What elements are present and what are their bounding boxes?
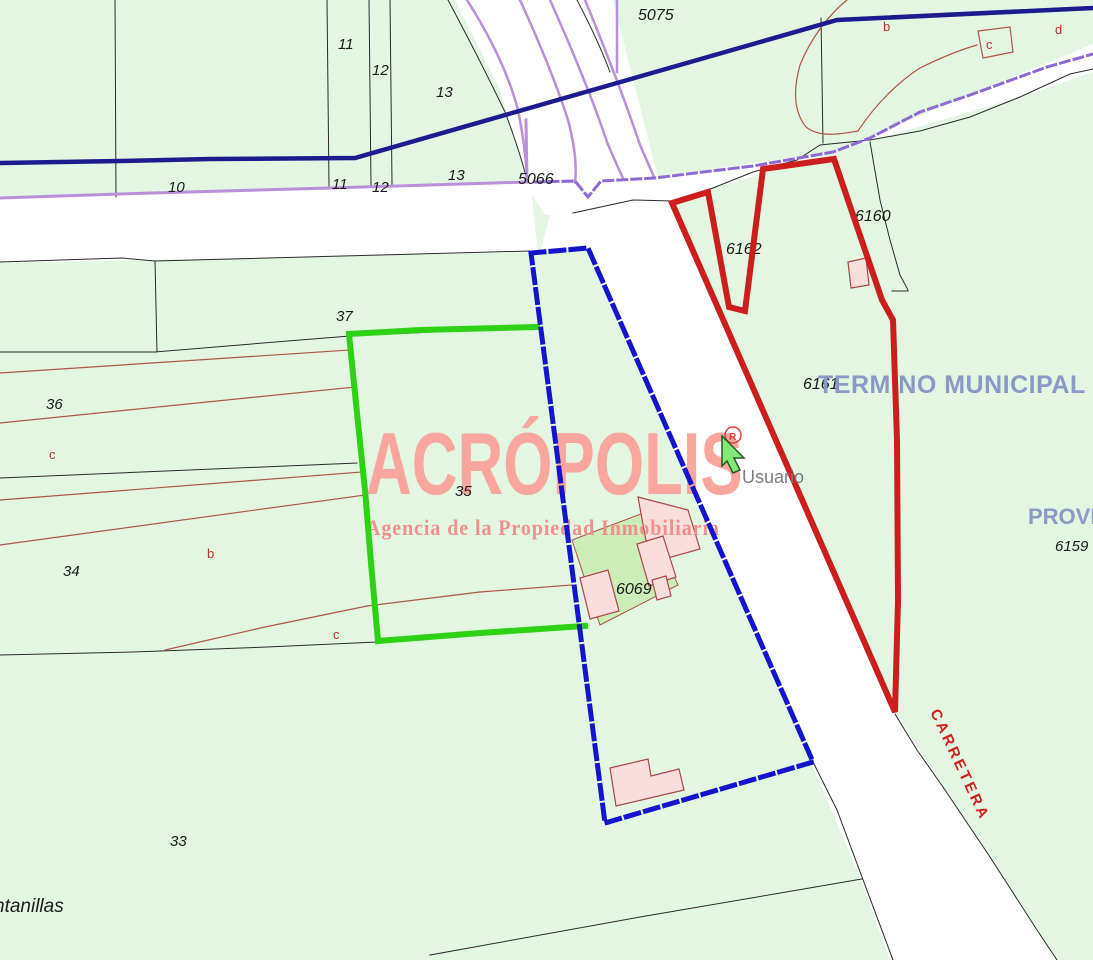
label-parcel: 6069 (616, 581, 652, 598)
label-parcel: 11 (332, 176, 348, 193)
label-parcel: 5075 (638, 7, 674, 24)
label-parcel: 36 (46, 396, 63, 413)
label-subparcel: b (207, 546, 214, 561)
label-parcel: 37 (336, 308, 353, 325)
label-subparcel: d (1055, 22, 1062, 37)
map-overlay-layer: 11121350751011121350663736c34bc3533ntani… (0, 0, 1093, 960)
label-subparcel: c (49, 447, 56, 462)
label-provincia: PROVINCIA (1028, 504, 1093, 529)
label-parcel: 13 (436, 84, 453, 101)
highlight-red-parcel (672, 159, 898, 712)
highlight-green-left (349, 334, 378, 641)
label-parcel: 6159 (1055, 538, 1089, 555)
label-subparcel: c (986, 37, 993, 52)
label-parcel: 35 (455, 483, 472, 500)
highlight-green-top (349, 327, 537, 334)
label-usuario: Usuario (742, 467, 804, 487)
label-parcel: 12 (372, 62, 389, 79)
label-parcel: 12 (372, 179, 389, 196)
label-parcel: 33 (170, 833, 187, 850)
highlight-green-bottom (378, 626, 585, 641)
label-parcel: 13 (448, 167, 465, 184)
label-parcel: 34 (63, 563, 80, 580)
label-place: ntanillas (0, 896, 64, 917)
label-termino-municipal: TERMINO MUNICIPAL (818, 371, 1086, 399)
label-parcel: 5066 (518, 171, 554, 188)
cadastral-map-canvas[interactable]: ACRÓPOLIS Agencia de la Propiedad Inmobi… (0, 0, 1093, 960)
highlight-blue-parcel (531, 248, 813, 823)
registered-mark-r: R (729, 432, 737, 443)
label-subparcel: c (333, 627, 340, 642)
label-subparcel: b (883, 19, 890, 34)
label-parcel: 6160 (855, 208, 891, 225)
label-parcel: 11 (338, 36, 354, 53)
label-parcel: 10 (168, 179, 185, 196)
label-carretera: CARRETERA (926, 707, 993, 824)
